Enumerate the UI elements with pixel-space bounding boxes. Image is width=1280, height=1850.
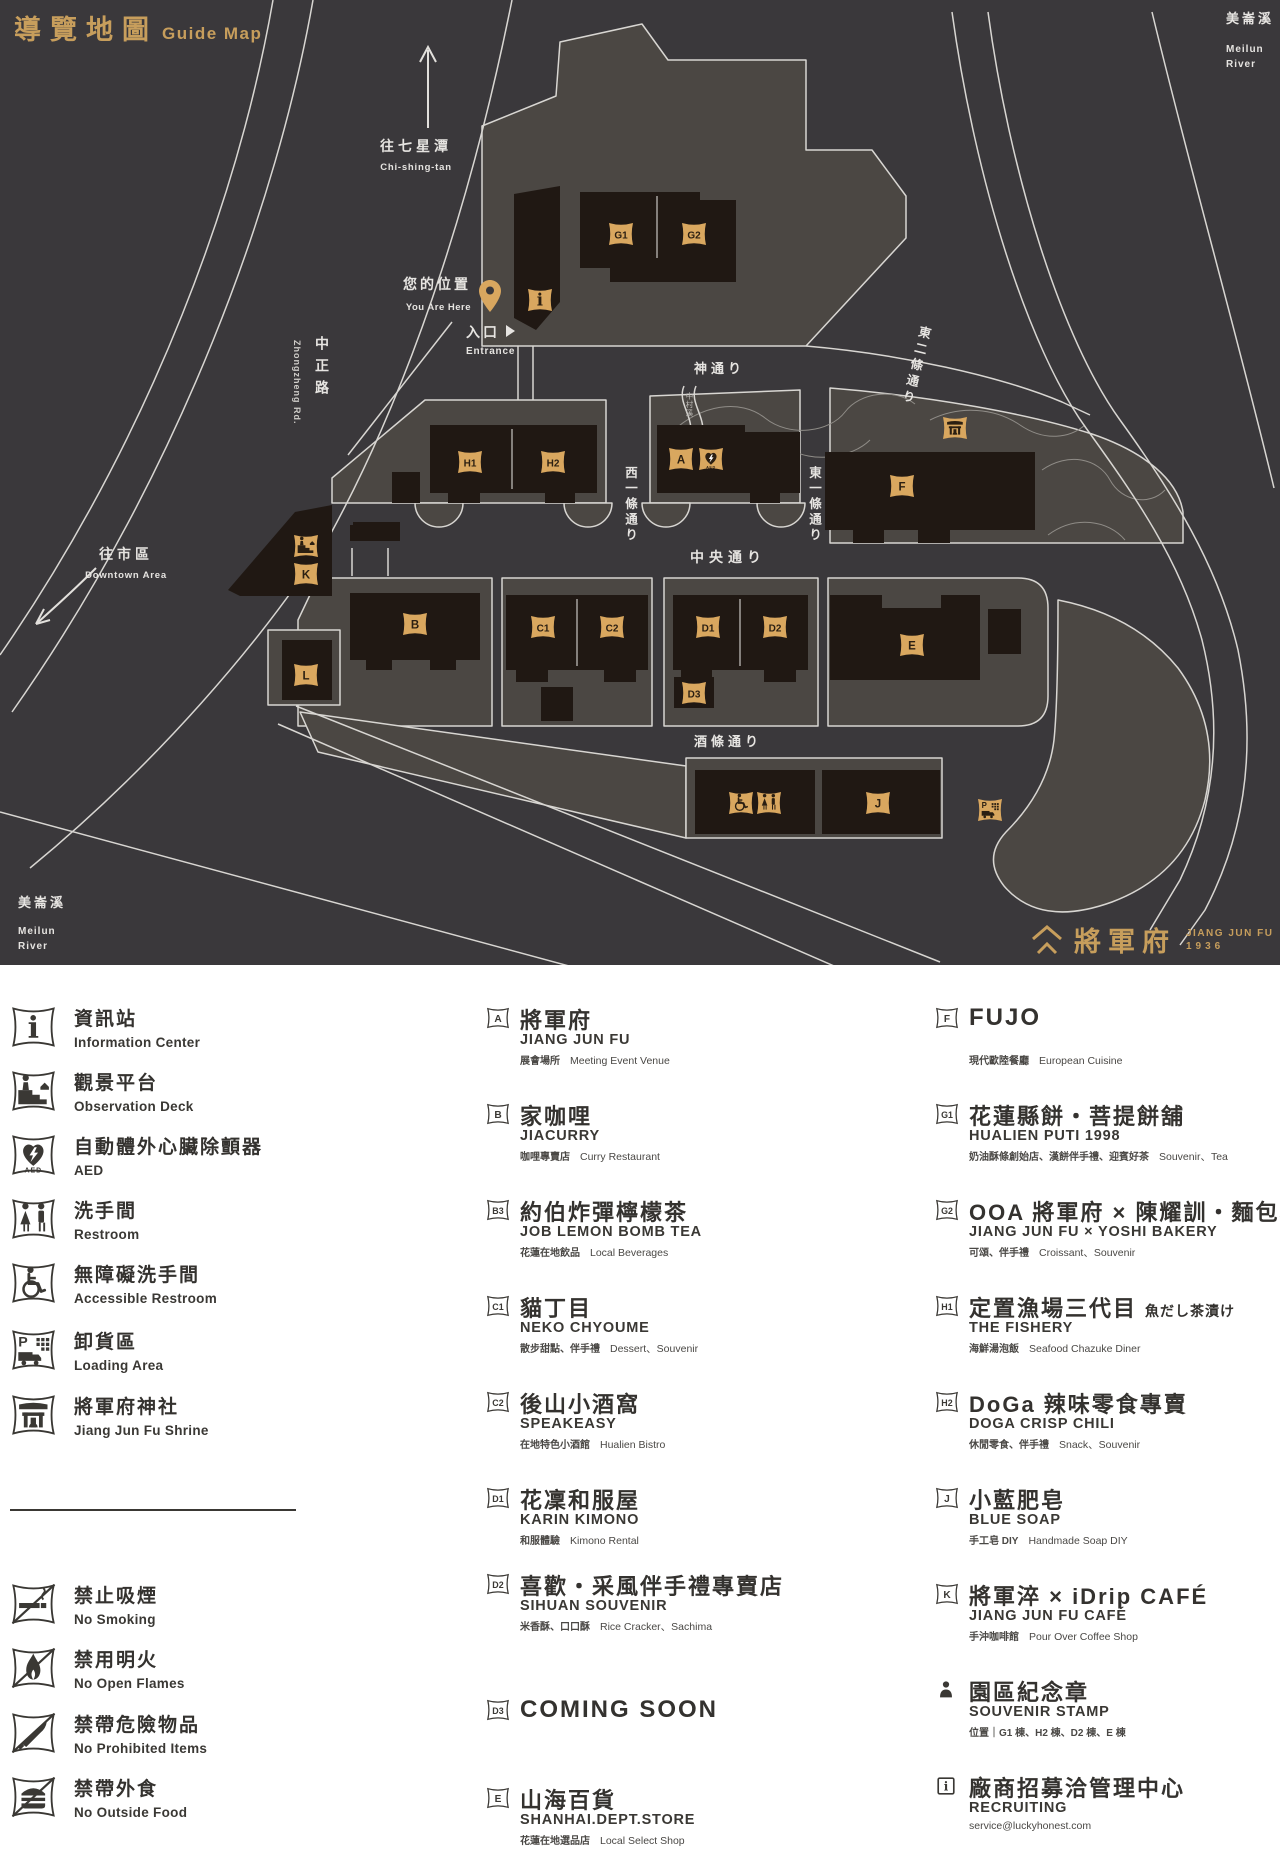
legend-tag-C2: C2 <box>486 1391 510 1413</box>
map-tag-info-icon: i <box>526 287 554 313</box>
svg-text:C2: C2 <box>492 1398 503 1408</box>
legend-tag-H1: H1 <box>935 1295 959 1317</box>
legend-tag-G1: G1 <box>935 1103 959 1125</box>
aed-icon: AED <box>10 1133 57 1177</box>
shop-subtitle: JIANG JUN FU × YOSHI BAKERY <box>969 1224 1217 1240</box>
shop-subtitle: SIHUAN SOUVENIR <box>520 1598 667 1614</box>
loading-icon: P <box>10 1328 57 1372</box>
path-vertical <box>352 548 388 576</box>
direction-downtown: 往市區 Downtown Area <box>66 544 186 581</box>
shop-title-suffix: 魚だし茶漬け <box>1145 1303 1235 1319</box>
svg-text:C1: C1 <box>537 624 550 635</box>
shop-description: 可頌、伴手禮Croissant、Souvenir <box>969 1244 1135 1260</box>
map-tag-AED-icon: AED <box>697 446 725 472</box>
shop-subtitle: JOB LEMON BOMB TEA <box>520 1224 702 1240</box>
shop-description: 位置｜G1 棟、H2 棟、D2 棟、E 棟 <box>969 1724 1126 1739</box>
map-tag-J: J <box>864 790 892 816</box>
shop-title: 花凜和服屋 <box>520 1483 640 1515</box>
restroom-icon <box>10 1197 57 1241</box>
shop-description: 奶油酥條創始店、漢餅伴手禮、迎賓好茶Souvenir、Tea <box>969 1148 1228 1164</box>
svg-text:G2: G2 <box>687 231 701 242</box>
shop-title: COMING SOON <box>520 1696 718 1724</box>
street-label-chuo: 中央通り <box>690 547 766 567</box>
legend-tag-A: A <box>486 1007 510 1029</box>
legend-item-subtitle: Restroom <box>74 1227 410 1242</box>
map-canvas <box>0 0 1280 965</box>
legend-item-title: 禁帶外食 <box>74 1774 410 1801</box>
you-are-here-label: 您的位置 You Are Here <box>379 274 471 313</box>
legend-item-subtitle: Jiang Jun Fu Shrine <box>74 1423 410 1438</box>
shop-description: 展會場所Meeting Event Venue <box>520 1052 670 1067</box>
shop-title: FUJO <box>969 1004 1041 1032</box>
svg-text:G2: G2 <box>941 1206 953 1216</box>
accessible-icon <box>10 1261 57 1305</box>
legend-item-no-flame: 禁用明火No Open Flames <box>10 1645 410 1691</box>
shop-description: 和服體驗Kimono Rental <box>520 1532 639 1547</box>
svg-text:J: J <box>944 1494 950 1505</box>
legend-item-title: 自動體外心臟除顫器 <box>74 1132 410 1159</box>
svg-text:D2: D2 <box>492 1580 503 1590</box>
shop-subtitle: JIACURRY <box>520 1128 600 1144</box>
shop-description: service@luckyhonest.com <box>969 1820 1091 1832</box>
map-tag-loading-icon: P <box>976 797 1004 823</box>
legend-tag-K: K <box>935 1583 959 1605</box>
building-annex <box>353 522 400 538</box>
map-tag-K: K <box>292 561 320 587</box>
stream-label: 中村溪 <box>684 392 695 418</box>
legend-tag-H2: H2 <box>935 1391 959 1413</box>
map-tag-observation-icon <box>292 533 320 559</box>
svg-text:i: i <box>28 1011 39 1046</box>
svg-text:H1: H1 <box>464 459 477 470</box>
legend-item-title: 將軍府神社 <box>74 1392 410 1419</box>
road-label-zhongzheng-en: Zhongzheng Rd. <box>292 340 302 424</box>
legend-tag-E: E <box>486 1787 510 1809</box>
svg-text:A: A <box>494 1014 502 1025</box>
legend-tag-D2: D2 <box>486 1573 510 1595</box>
svg-text:L: L <box>302 671 309 683</box>
legend-tag-B3: B3 <box>486 1199 510 1221</box>
building-f <box>825 452 1035 543</box>
svg-text:G1: G1 <box>614 231 628 242</box>
brand-name-en: JIANG JUN FU <box>1186 928 1273 939</box>
shop-description: 米香酥、口口酥Rice Cracker、Sachima <box>520 1618 712 1634</box>
page-title-en: Guide Map <box>162 24 262 43</box>
shop-subtitle: KARIN KIMONO <box>520 1512 639 1528</box>
building-h-annex <box>392 472 420 503</box>
legend-tag-recruit-boxed-i-icon: i <box>935 1775 959 1797</box>
shop-description: 手工皂 DIYHandmade Soap DIY <box>969 1532 1128 1547</box>
shop-title: 將軍府 <box>520 1003 592 1035</box>
svg-text:i: i <box>944 1780 949 1794</box>
river-label-topright: 美崙溪 Meilun River <box>1226 10 1274 72</box>
svg-text:D3: D3 <box>688 690 701 701</box>
map-tag-H2: H2 <box>539 449 567 475</box>
legend-item-restroom: 洗手間Restroom <box>10 1196 410 1242</box>
map-tag-H1: H1 <box>456 449 484 475</box>
shop-subtitle: NEKO CHYOUME <box>520 1320 650 1336</box>
entrance-label: 入口 Entrance <box>466 322 515 357</box>
shop-subtitle: SPEAKEASY <box>520 1416 617 1432</box>
svg-text:D1: D1 <box>492 1494 503 1504</box>
legend-tag-F: F <box>935 1007 959 1029</box>
svg-text:D1: D1 <box>702 624 715 635</box>
street-label-saka: 酒條通り <box>694 731 762 750</box>
plaza-arc <box>415 503 463 527</box>
shop-description: 咖哩專賣店Curry Restaurant <box>520 1148 660 1163</box>
svg-text:B3: B3 <box>492 1206 503 1216</box>
shop-title: 喜歡・采風伴手禮專賣店 <box>520 1569 784 1601</box>
brand-roof-icon <box>1030 924 1064 956</box>
shop-title: 約伯炸彈檸檬茶 <box>520 1195 688 1227</box>
legend-item-title: 無障礙洗手間 <box>74 1260 410 1287</box>
legend-tag-C1: C1 <box>486 1295 510 1317</box>
shop-subtitle: HUALIEN PUTI 1998 <box>969 1128 1120 1144</box>
legend-item-title: 觀景平台 <box>74 1068 410 1095</box>
legend-item-title: 資訊站 <box>74 1004 410 1031</box>
shop-subtitle: SOUVENIR STAMP <box>969 1704 1110 1720</box>
legend-item-title: 洗手間 <box>74 1196 410 1223</box>
map-tag-C1: C1 <box>529 614 557 640</box>
svg-text:C2: C2 <box>606 624 619 635</box>
svg-text:D3: D3 <box>492 1706 503 1716</box>
brand-logo: 將軍府 JIANG JUN FU 1936 <box>1030 920 1273 959</box>
road-label-zhongzheng-cjk: 中正路 <box>312 336 332 402</box>
shop-title: DoGa 辣味零食專賣 <box>969 1387 1188 1419</box>
shop-description: 在地特色小酒館Hualien Bistro <box>520 1436 665 1451</box>
info-icon: i <box>10 1005 57 1049</box>
shop-title: 園區紀念章 <box>969 1675 1089 1707</box>
svg-text:B: B <box>494 1110 501 1121</box>
shop-description: 休閒零食、伴手禮Snack、Souvenir <box>969 1436 1140 1452</box>
river-label-bottomleft: 美崙溪 Meilun River <box>18 894 66 954</box>
street-label-kami: 神通り <box>694 358 745 377</box>
legend-item-subtitle: Observation Deck <box>74 1099 410 1114</box>
legend-item-title: 禁止吸煙 <box>74 1581 410 1608</box>
entrance-arrow-icon <box>506 325 515 337</box>
svg-text:A: A <box>677 455 685 467</box>
legend-item-observation: 觀景平台Observation Deck <box>10 1068 410 1114</box>
map-tag-G2: G2 <box>680 221 708 247</box>
map-tag-D1: D1 <box>694 614 722 640</box>
plaza-arc <box>564 503 612 527</box>
legend-item-subtitle: No Prohibited Items <box>74 1741 410 1756</box>
no-smoking-icon <box>10 1582 57 1626</box>
svg-text:B: B <box>411 620 419 632</box>
legend-item-no-dangerous: 禁帶危險物品No Prohibited Items <box>10 1710 410 1756</box>
map-tag-A: A <box>667 446 695 472</box>
path-vertical <box>518 346 533 400</box>
legend-item-subtitle: Loading Area <box>74 1358 410 1373</box>
shop-description: 散步甜點、伴手禮Dessert、Souvenir <box>520 1340 698 1356</box>
road-river-southwest <box>0 812 665 965</box>
legend-item-title: 禁帶危險物品 <box>74 1710 410 1737</box>
svg-text:P: P <box>18 1335 27 1351</box>
legend-item-no-food: 禁帶外食No Outside Food <box>10 1774 410 1820</box>
shop-title: 將軍淬 × iDrip CAFÉ <box>969 1579 1208 1611</box>
brand-year: 1936 <box>1186 941 1273 952</box>
legend-item-subtitle: No Smoking <box>74 1612 410 1627</box>
no-food-icon <box>10 1775 57 1819</box>
shop-title: 家咖哩 <box>520 1099 592 1131</box>
legend-tag-stamp-stamp-icon <box>935 1679 959 1701</box>
svg-text:F: F <box>944 1014 950 1025</box>
shop-subtitle: THE FISHERY <box>969 1320 1073 1336</box>
shop-title: 定置漁場三代目魚だし茶漬け <box>969 1291 1235 1323</box>
page-title-cjk: 導覽地圖 <box>14 15 158 45</box>
svg-text:E: E <box>495 1794 502 1805</box>
shop-title: 小藍肥皂 <box>969 1483 1065 1515</box>
shop-subtitle: BLUE SOAP <box>969 1512 1061 1528</box>
guide-map-page: 導覽地圖Guide Map 美崙溪 Meilun River 往七星潭 Chi-… <box>0 0 1280 1850</box>
building-c-annex <box>541 687 573 721</box>
map-tag-L: L <box>292 662 320 688</box>
map-tag-C2: C2 <box>598 614 626 640</box>
map-tag-wc-accessible-icon <box>727 790 755 816</box>
map-tag-E: E <box>898 632 926 658</box>
legend-tag-G2: G2 <box>935 1199 959 1221</box>
legend-divider <box>10 1509 296 1511</box>
shop-title: 貓丁目 <box>520 1291 592 1323</box>
legend-item-aed: AED自動體外心臟除顫器AED <box>10 1132 410 1178</box>
legend-tag-D1: D1 <box>486 1487 510 1509</box>
legend-item-accessible: 無障礙洗手間Accessible Restroom <box>10 1260 410 1306</box>
svg-text:E: E <box>908 641 916 653</box>
svg-text:H1: H1 <box>941 1302 952 1312</box>
map-tag-shrine-icon <box>941 415 969 441</box>
street-label-nishi1: 西一條通り <box>621 466 640 544</box>
svg-text:F: F <box>898 482 905 494</box>
observation-icon <box>10 1069 57 1113</box>
legend-tag-B: B <box>486 1103 510 1125</box>
svg-text:K: K <box>943 1590 951 1601</box>
svg-text:AED: AED <box>706 465 716 469</box>
road-river-northeast <box>1152 12 1274 488</box>
svg-text:C1: C1 <box>492 1302 503 1312</box>
svg-text:H2: H2 <box>547 459 560 470</box>
legend-item-shrine: 將軍府神社Jiang Jun Fu Shrine <box>10 1392 410 1438</box>
page-title: 導覽地圖Guide Map <box>14 8 262 47</box>
map-tag-D2: D2 <box>761 614 789 640</box>
map-tag-G1: G1 <box>607 221 635 247</box>
svg-text:P: P <box>982 801 987 810</box>
legend-item-subtitle: Accessible Restroom <box>74 1291 410 1306</box>
shop-title: 廠商招募洽管理中心 <box>969 1771 1185 1803</box>
shop-description: 現代歐陸餐廳European Cuisine <box>969 1052 1122 1067</box>
svg-text:i: i <box>537 290 543 310</box>
brand-name-cjk: 將軍府 <box>1074 920 1176 959</box>
map-tag-D3: D3 <box>680 680 708 706</box>
legend-tag-D3: D3 <box>486 1699 510 1721</box>
shop-title: 山海百貨 <box>520 1783 616 1815</box>
shop-title: 後山小酒窩 <box>520 1387 640 1419</box>
map-tag-B: B <box>401 611 429 637</box>
legend-item-subtitle: AED <box>74 1163 410 1178</box>
svg-text:AED: AED <box>25 1167 43 1174</box>
shop-title: 花蓮縣餅・菩提餅舖 <box>969 1099 1185 1131</box>
no-flame-icon <box>10 1646 57 1690</box>
plaza-arc <box>757 503 805 527</box>
legend-item-title: 禁用明火 <box>74 1645 410 1672</box>
shop-title: OOA 將軍府 × 陳耀訓・麵包埠 <box>969 1195 1280 1227</box>
svg-text:G1: G1 <box>941 1110 953 1120</box>
legend-item-no-smoking: 禁止吸煙No Smoking <box>10 1581 410 1627</box>
shop-description: 海鮮湯泡飯Seafood Chazuke Diner <box>969 1340 1141 1355</box>
legend-item-subtitle: No Outside Food <box>74 1805 410 1820</box>
shrine-icon <box>10 1393 57 1437</box>
legend-item-loading: P卸貨區Loading Area <box>10 1327 410 1373</box>
svg-text:H2: H2 <box>941 1398 952 1408</box>
shop-description: 花蓮在地飲品Local Beverages <box>520 1244 668 1259</box>
shop-description: 花蓮在地選品店Local Select Shop <box>520 1832 685 1847</box>
direction-chishingtan: 往七星潭 Chi-shing-tan <box>356 136 476 173</box>
plaza-arc <box>642 503 690 527</box>
building-e-annex <box>988 609 1021 654</box>
no-dangerous-icon <box>10 1711 57 1755</box>
legend-item-subtitle: Information Center <box>74 1035 410 1050</box>
site-map: 導覽地圖Guide Map 美崙溪 Meilun River 往七星潭 Chi-… <box>0 0 1280 965</box>
shop-subtitle: RECRUITING <box>969 1800 1067 1816</box>
shop-description: 手沖咖啡館Pour Over Coffee Shop <box>969 1628 1138 1643</box>
legend-item-subtitle: No Open Flames <box>74 1676 410 1691</box>
svg-text:K: K <box>302 570 311 582</box>
shop-subtitle: JIANG JUN FU <box>520 1032 630 1048</box>
shop-subtitle: JIANG JUN FU CAFÉ <box>969 1608 1127 1624</box>
legend-item-info: i資訊站Information Center <box>10 1004 410 1050</box>
shop-subtitle: DOGA CRISP CHILI <box>969 1416 1115 1432</box>
legend-item-title: 卸貨區 <box>74 1327 410 1354</box>
map-tag-wc-icon <box>755 790 783 816</box>
svg-text:D2: D2 <box>769 624 782 635</box>
map-tag-F: F <box>888 473 916 499</box>
north-arrow <box>420 47 436 128</box>
svg-text:J: J <box>875 799 881 811</box>
legend-tag-J: J <box>935 1487 959 1509</box>
shop-subtitle: SHANHAI.DEPT.STORE <box>520 1812 695 1828</box>
street-label-higashi1: 東一條通り <box>805 466 824 544</box>
